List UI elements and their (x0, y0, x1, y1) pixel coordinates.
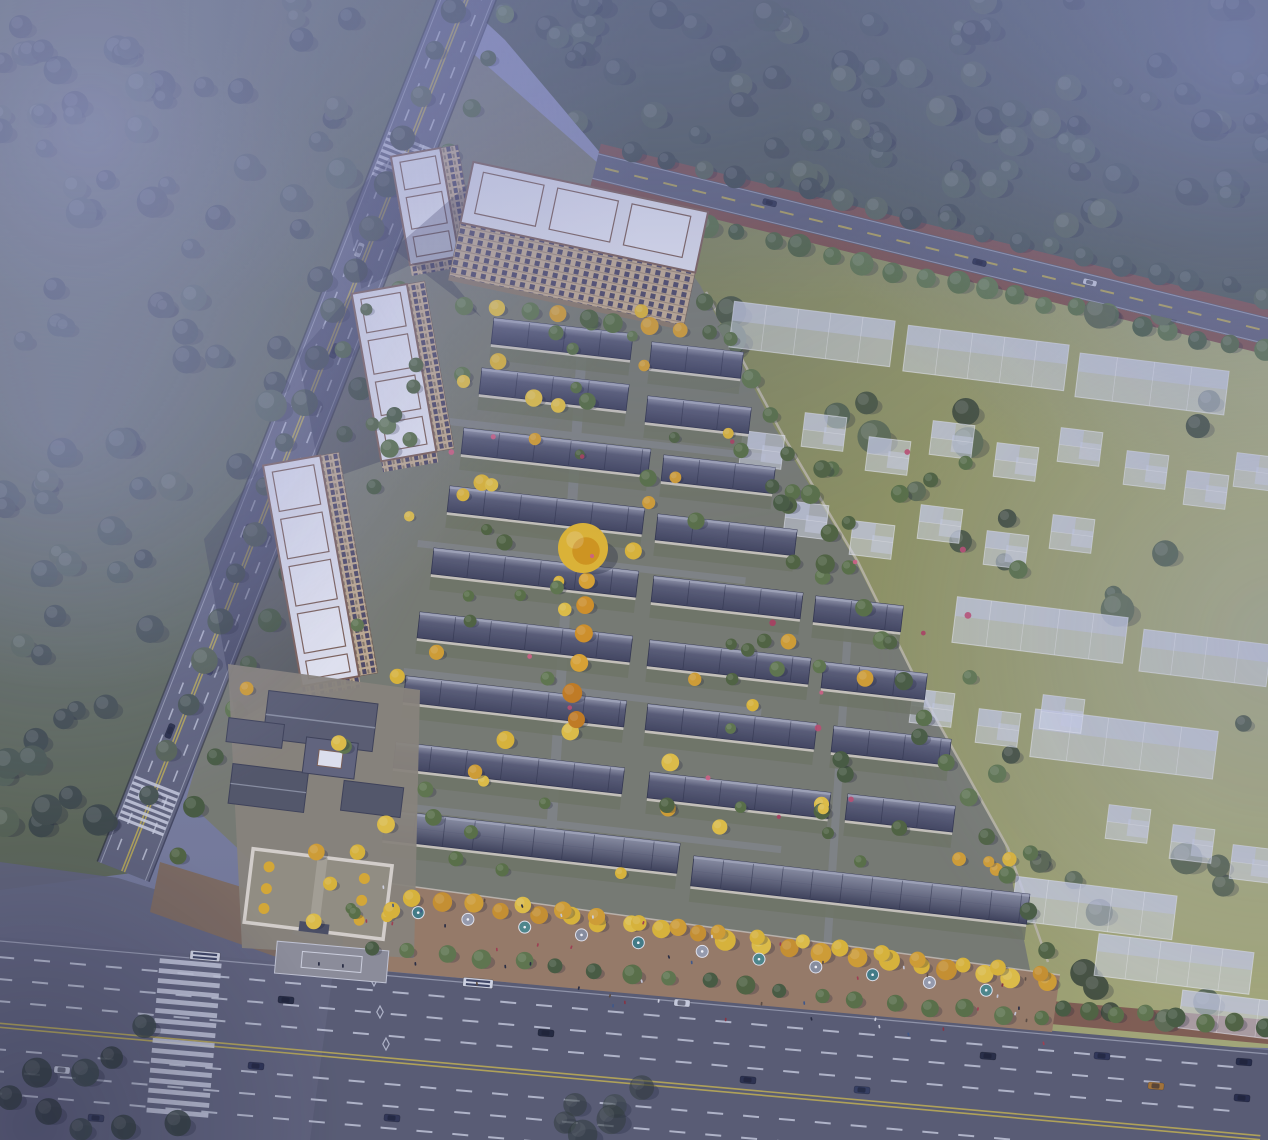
atmospheric-haze (0, 0, 1268, 1140)
global-blue-tint (0, 0, 1268, 1140)
aerial-rendering-residential-masterplan (0, 0, 1268, 1140)
scene-canvas (0, 0, 1268, 1140)
